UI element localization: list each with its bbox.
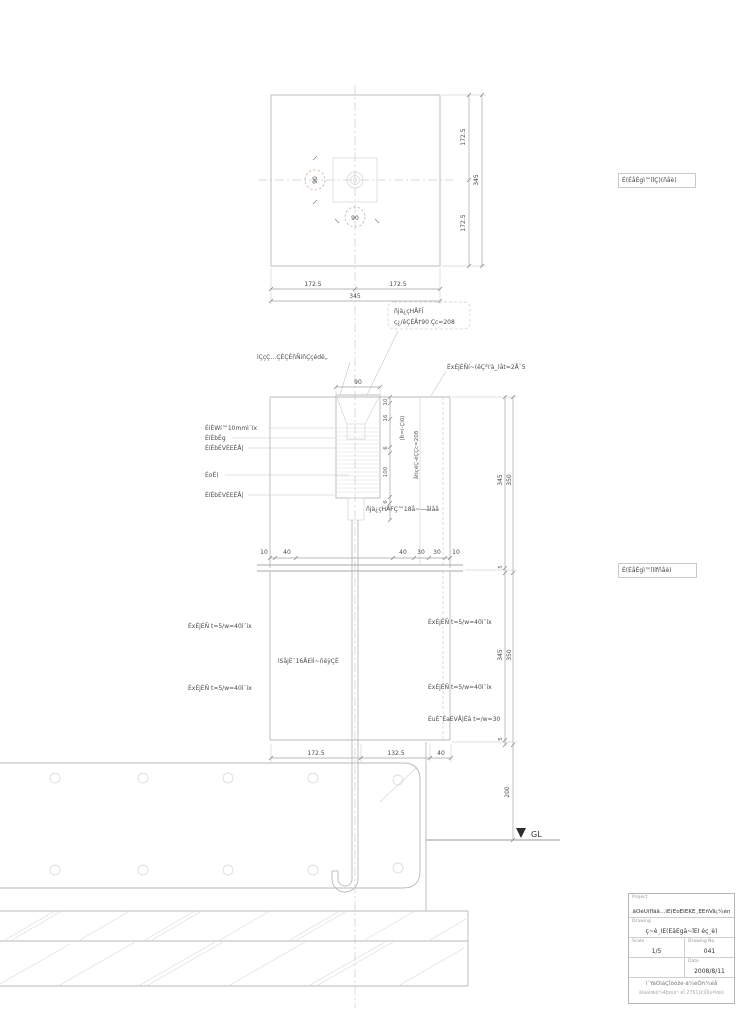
left-note-1: ÉíÉWí™10mmì¨íx — [205, 424, 258, 432]
chain-345-lower: 345 — [497, 649, 504, 661]
post-dim-top: 90 — [354, 379, 362, 386]
plan-view — [271, 95, 440, 266]
small-dim-100: 100 — [383, 466, 389, 477]
drawing-canvas: 172.5 172.5 345 172.5 172.5 345 90 90 ñj… — [0, 0, 748, 1024]
dimrow-40r: 40 — [399, 549, 407, 556]
plan-dim-circle-left: 90 — [312, 176, 319, 184]
left-note-3: ÉíÉbÉVÉEÉÅ| — [205, 444, 243, 452]
rotated-note-outer: åtìçêÇ-êÇÇc=208 — [413, 430, 420, 479]
project-label: Project — [632, 895, 647, 900]
drawing-no-cell: Drawing No. 041 — [684, 938, 734, 957]
titleblock-drawing-row: Drawing ç~è¸ÎÉ(ÉåÉgå~îÉÎ éç¸è) — [629, 918, 734, 938]
drawing-no-label: Drawing No. — [688, 939, 716, 944]
annot-top-left: ìÇçÇ…ÇÉÇÉñÑíñÇçédë„ — [256, 353, 328, 361]
small-dim-6a: 6 — [383, 446, 389, 450]
date-value: 2008/8/11 — [685, 968, 734, 975]
annot-top-right: ÉxÉjÉÑí~(êÇ²ì'à_)åt=2Å`5 — [447, 363, 526, 371]
dimrow-30a: 30 — [417, 549, 425, 556]
small-dim-6b: 6 — [383, 500, 389, 504]
ground-line: GL — [426, 828, 560, 840]
dimrow-10r: 10 — [452, 549, 460, 556]
titleblock-project-row: Project äÒéUìfläå…ìÉ(ÉoÉÎÉKÉ¸ÉÉñVå¡¼én — [629, 894, 734, 918]
gl-label: GL — [531, 830, 542, 839]
veneer-right-1: ÉxÉjÉÑ t=5/w=40ì¨íx — [428, 618, 492, 626]
dim-bottom-40: 40 — [437, 750, 445, 757]
veneer-left-2: ÉxÉjÉÑ t=5/w=40ì¨íx — [188, 684, 252, 692]
plan-reference-label: É(ÉåÉgì™îlÇ)(ñåè) — [618, 173, 696, 188]
chain-5-upper: 5 — [498, 565, 504, 569]
left-note-5: ÉíÉbÉVÉEÉÅ| — [205, 491, 243, 499]
small-dim-16: 16 — [383, 414, 389, 421]
anchor-note: ñjà¿çHÅFÇ™18å~—ålåå — [366, 506, 439, 513]
callout-line2: ç¿/êÇÉÅ†90 Çc=208 — [394, 318, 455, 326]
titleblock-scale-row: Scale 1/5 Drawing No. 041 — [629, 938, 734, 958]
drawing-value: ç~è¸ÎÉ(ÉåÉgå~îÉÎ éç¸è) — [629, 928, 734, 935]
center-note: ìSåjÉ¨16ÅEÌÌ~ñéÿÇÉ — [277, 657, 339, 665]
dim-200: 200 — [504, 786, 511, 798]
left-note-2: ÉíÉbÉg — [205, 434, 226, 442]
date-label: Date — [688, 959, 699, 964]
dimrow-40l: 40 — [283, 549, 291, 556]
dim-bottom-1325: 132.5 — [387, 750, 404, 757]
drawing-label: Drawing — [632, 919, 651, 924]
gl-marker-icon — [516, 828, 526, 838]
chain-5-lower: 5 — [498, 737, 504, 741]
plan-dim-bottom-total: 345 — [349, 293, 361, 300]
date-cell: Date 2008/8/11 — [684, 958, 734, 977]
plate-note: ÉuÉ˘ÉaÉVÅ|Éå t=/w=30 — [428, 715, 500, 723]
left-note-4: ÉoÉ) — [205, 471, 219, 479]
footer-line1: ì˜YäÒìáÇÎôòžé·ä¼éÒñ¼éå — [629, 981, 734, 987]
center-lines — [258, 85, 453, 1008]
anchor-callout: ñjà¿çHÅFÎ ç¿/êÇÉÅ†90 Çc=208 — [367, 302, 470, 395]
veneer-right-2: ÉxÉjÉÑ t=5/w=40ì¨íx — [428, 683, 492, 691]
scale-cell: Scale 1/5 — [629, 938, 684, 957]
small-dim-10: 10 — [383, 398, 389, 405]
plan-dim-bottom-right: 172.5 — [389, 281, 406, 288]
footer-line2: älaaìœè¼4þour¹ éÎ 2761(k)Îßúªìœù — [629, 991, 734, 996]
titleblock-footer-row: ì˜YäÒìáÇÎôòžé·ä¼éÒñ¼éå älaaìœè¼4þour¹ éÎ… — [629, 978, 734, 1002]
chain-350-lower: 350 — [506, 649, 513, 661]
cad-drawing-page: 172.5 172.5 345 172.5 172.5 345 90 90 ñj… — [0, 0, 748, 1024]
plan-dim-right-upper: 172.5 — [460, 128, 467, 145]
section-annotations: ìÇçÇ…ÇÉÇÉñÑíñÇçédë„ ÉxÉjÉÑí~(êÇ²ì'à_)åt=… — [188, 353, 526, 723]
chain-350-upper: 350 — [506, 474, 513, 486]
dimrow-10l: 10 — [260, 549, 268, 556]
chain-345-upper: 345 — [497, 474, 504, 486]
plan-dimensions: 172.5 172.5 345 172.5 172.5 345 90 90 — [269, 93, 486, 304]
title-block: Project äÒéUìfläå…ìÉ(ÉoÉÎÉKÉ¸ÉÉñVå¡¼én D… — [628, 893, 735, 1004]
titleblock-date-row: Date 2008/8/11 — [629, 958, 734, 978]
plan-dim-circle-bottom: 90 — [351, 215, 359, 222]
dimrow-30b: 30 — [433, 549, 441, 556]
plan-dim-right-total: 345 — [473, 174, 480, 186]
rotated-note-inner: (Ît=í-Çì0) — [399, 415, 406, 440]
callout-line1: ñjà¿çHÅFÎ — [394, 308, 424, 315]
plan-dim-bottom-left: 172.5 — [304, 281, 321, 288]
drawing-no-value: 041 — [685, 948, 734, 955]
section-dimensions: 90 10 16 6 100 6 (Ît=í-Çì0) åtìçêÇ-êÇÇc=… — [260, 379, 517, 842]
plan-dim-right-lower: 172.5 — [460, 214, 467, 231]
section-reference-label: É(ÉåÉgì™îlífñåè) — [618, 563, 697, 578]
veneer-left-1: ÉxÉjÉÑ t=5/w=40ì¨íx — [188, 622, 252, 630]
section-view — [257, 395, 463, 892]
project-value: äÒéUìfläå…ìÉ(ÉoÉÎÉKÉ¸ÉÉñVå¡¼én — [629, 909, 734, 915]
dim-bottom-1725: 172.5 — [307, 750, 324, 757]
scale-value: 1/5 — [629, 948, 684, 955]
scale-label: Scale — [632, 939, 644, 944]
concrete-base — [0, 742, 468, 986]
